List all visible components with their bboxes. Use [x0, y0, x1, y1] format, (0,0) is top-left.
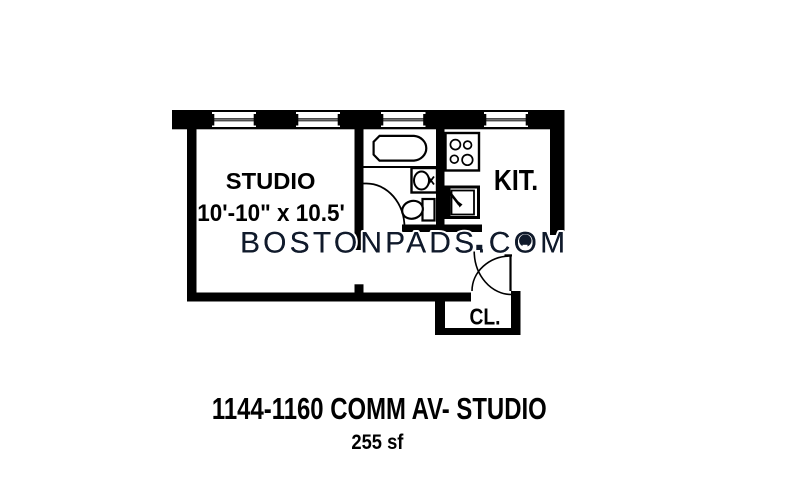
svg-text:STUDIO: STUDIO: [226, 168, 316, 194]
svg-text:10'-10" x 10.5': 10'-10" x 10.5': [197, 199, 345, 226]
svg-text:BOSTONPADS.COM: BOSTONPADS.COM: [240, 226, 568, 259]
svg-text:1144-1160 COMM AV- STUDIO: 1144-1160 COMM AV- STUDIO: [212, 391, 547, 426]
svg-text:255 sf: 255 sf: [351, 431, 403, 454]
svg-text:CL.: CL.: [470, 304, 501, 330]
svg-text:KIT.: KIT.: [494, 164, 538, 196]
